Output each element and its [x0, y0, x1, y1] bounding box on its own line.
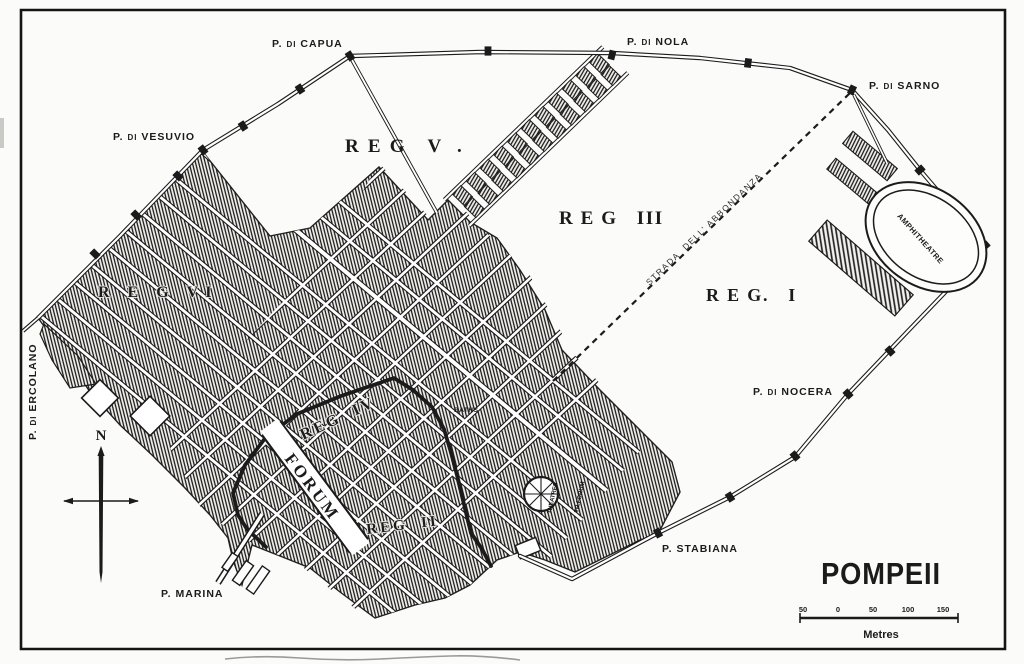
- svg-text:P. DI SARNO: P. DI SARNO: [869, 80, 940, 92]
- svg-text:R E G. I: R E G. I: [706, 285, 797, 305]
- svg-text:P. DI ERCOLANO: P. DI ERCOLANO: [27, 344, 39, 440]
- svg-text:Metres: Metres: [863, 629, 898, 641]
- svg-text:150: 150: [937, 605, 950, 614]
- svg-text:P. DI VESUVIO: P. DI VESUVIO: [113, 131, 195, 143]
- svg-text:POMPEII: POMPEII: [821, 557, 941, 591]
- svg-text:0: 0: [836, 605, 840, 614]
- svg-text:100: 100: [902, 605, 915, 614]
- svg-text:P. DI NOLA: P. DI NOLA: [627, 36, 689, 48]
- svg-text:P. MARINA: P. MARINA: [161, 588, 223, 600]
- svg-text:BATHS: BATHS: [454, 407, 479, 414]
- svg-text:R E G III: R E G III: [559, 208, 664, 229]
- svg-text:R E G V .: R E G V .: [345, 136, 464, 157]
- svg-text:50: 50: [799, 605, 807, 614]
- svg-text:P. STABIANA: P. STABIANA: [662, 543, 738, 555]
- svg-text:N: N: [96, 428, 107, 444]
- svg-text:P. DI CAPUA: P. DI CAPUA: [272, 38, 343, 50]
- svg-text:P. DI NOCERA: P. DI NOCERA: [753, 386, 833, 398]
- svg-text:R E G VI: R E G VI: [98, 284, 218, 301]
- svg-text:50: 50: [869, 605, 877, 614]
